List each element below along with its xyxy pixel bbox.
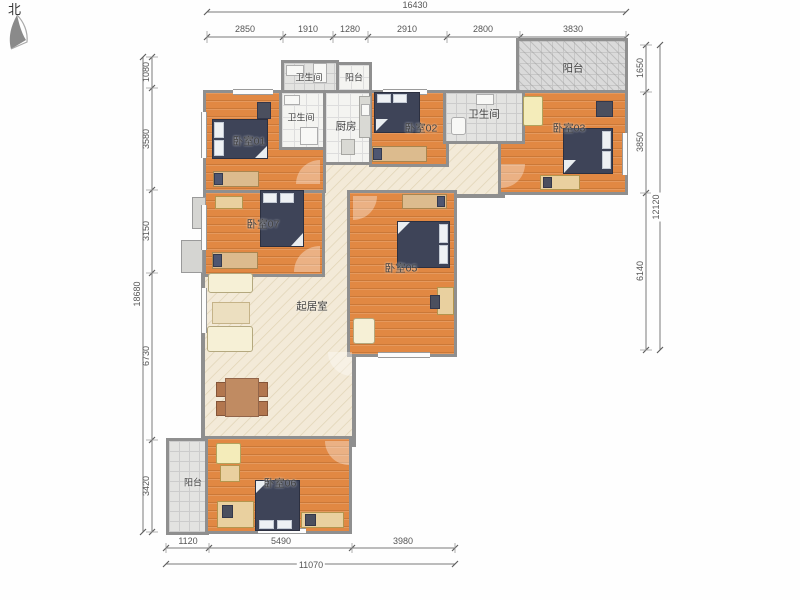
kitchen-sink: [361, 104, 370, 116]
ac-unit: [181, 240, 203, 273]
pillow: [439, 224, 448, 243]
window: [378, 352, 430, 358]
pillow: [393, 94, 407, 103]
pillow: [377, 94, 391, 103]
armchair: [353, 318, 375, 344]
window: [201, 205, 207, 250]
dining-table: [225, 378, 259, 417]
dimension-label: 16430: [402, 0, 427, 10]
dresser: [257, 102, 271, 119]
sink: [476, 94, 494, 105]
north-compass-icon: 北: [8, 2, 27, 49]
room-label: 卧室03: [553, 121, 586, 136]
room-label: 卧室05: [385, 261, 418, 276]
room-label: 阳台: [345, 71, 363, 84]
pillow: [263, 193, 277, 203]
dimension-label: 3580: [141, 129, 151, 149]
desk-chair: [430, 295, 440, 309]
dresser: [220, 465, 240, 482]
dimension-label: 2910: [397, 24, 417, 34]
pillow: [437, 196, 445, 207]
shower: [300, 127, 318, 145]
room-label: 卧室02: [405, 121, 438, 136]
toilet: [451, 117, 466, 135]
room-label: 厨房: [336, 119, 357, 134]
dimension-label: 2850: [235, 24, 255, 34]
room-label: 卧室01: [233, 134, 266, 149]
pillow: [602, 131, 611, 149]
room-label: 阳台: [563, 61, 584, 76]
pillow: [213, 254, 222, 267]
pillow: [439, 245, 448, 264]
window: [201, 288, 207, 333]
window: [622, 133, 628, 175]
pillow: [214, 122, 224, 138]
stove: [341, 139, 355, 155]
dimension-label: 3980: [393, 536, 413, 546]
pillow: [214, 173, 223, 185]
room-label: 起居室: [296, 299, 328, 314]
pillow: [280, 193, 294, 203]
floor-plan: 北: [0, 0, 800, 600]
armchair: [216, 443, 241, 464]
dimension-label: 2800: [473, 24, 493, 34]
dimension-label: 3150: [141, 221, 151, 241]
pillow: [602, 151, 611, 169]
dimension-label: 6140: [635, 261, 645, 281]
sofa: [207, 326, 253, 352]
pillow: [373, 148, 382, 160]
window: [233, 89, 273, 95]
armchair: [523, 96, 543, 126]
room-label: 阳台: [184, 476, 202, 489]
room-label: 卫生间: [287, 111, 314, 124]
desk-chair: [543, 177, 552, 188]
room-label: 卧室06: [264, 476, 297, 491]
pillow: [277, 520, 292, 529]
dimension-label: 1120: [178, 536, 197, 546]
dimension-label: 18680: [132, 279, 142, 308]
room-label: 卫生间: [295, 71, 322, 84]
dimension-label: 12120: [651, 192, 661, 221]
sink: [284, 95, 300, 105]
dimension-label: 11070: [297, 560, 325, 570]
window: [201, 112, 207, 158]
desk-chair: [222, 505, 233, 518]
pillow: [214, 140, 224, 156]
room-label: 卧室07: [247, 217, 280, 232]
dimension-label: 5490: [271, 536, 291, 546]
dimension-label: 3830: [563, 24, 583, 34]
dresser: [215, 196, 243, 209]
coffee-table: [212, 302, 250, 324]
dimension-label: 3850: [635, 132, 645, 152]
room-label: 卫生间: [468, 107, 500, 122]
dimension-label: 1650: [635, 58, 645, 78]
pillow: [259, 520, 274, 529]
kitchen-counter: [359, 96, 371, 138]
dimension-label: 6730: [141, 346, 151, 366]
dimension-label: 3420: [141, 476, 151, 496]
luggage: [305, 514, 316, 526]
cabinet: [596, 101, 613, 117]
north-label: 北: [8, 2, 21, 17]
dimension-label: 1910: [298, 24, 318, 34]
sofa: [208, 273, 253, 293]
dimension-label: 1080: [141, 62, 151, 82]
dimension-label: 1280: [340, 24, 360, 34]
